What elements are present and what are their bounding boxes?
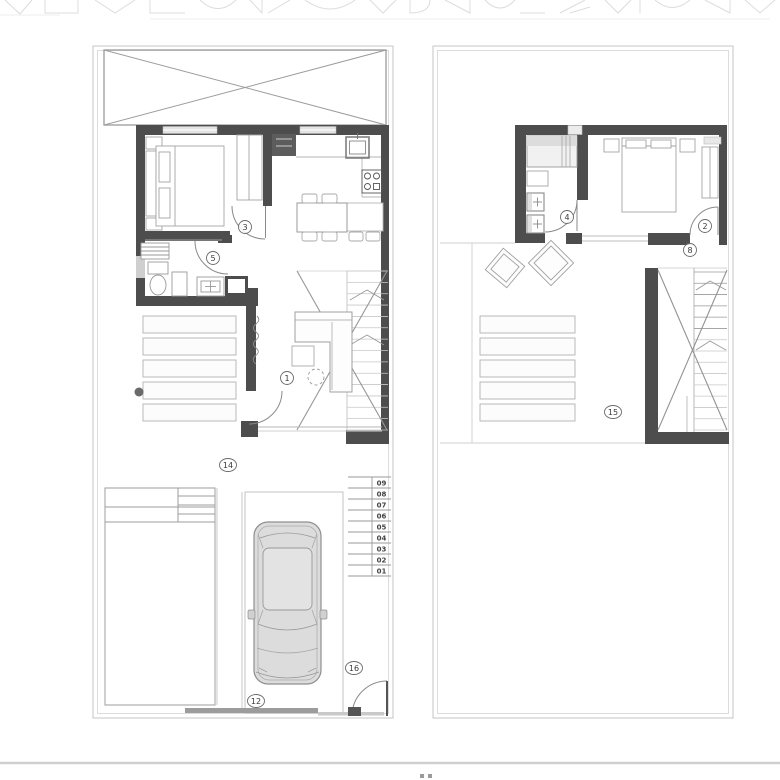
room-label-number: 8 <box>687 246 692 255</box>
shelf <box>704 137 721 144</box>
step-number: 08 <box>377 491 387 499</box>
floor-plan-sheet: 090807060504030201 351141612 <box>0 0 780 780</box>
wardrobe <box>237 135 262 200</box>
shower <box>527 136 577 167</box>
bath-cabinet <box>172 272 187 296</box>
outdoor-ground: 090807060504030201 <box>105 477 391 716</box>
column-dot <box>135 388 144 397</box>
ground-floor-plan: 090807060504030201 351141612 <box>93 46 393 718</box>
step-number: 06 <box>377 513 387 521</box>
deck-slat <box>143 360 236 377</box>
step-number: 01 <box>377 568 387 576</box>
shower-bench <box>141 243 169 259</box>
bed <box>622 138 676 212</box>
deck-slat <box>480 382 575 399</box>
room-label: 14 <box>220 459 237 472</box>
deck-slat <box>143 404 236 421</box>
deck-slat <box>480 338 575 355</box>
plan-drawing: 090807060504030201 351141612 <box>0 0 780 780</box>
car-mirror <box>320 610 327 619</box>
bedroom-upper <box>604 138 718 212</box>
kitchen <box>272 133 383 241</box>
cropped-title-outline-strip <box>0 0 775 19</box>
deck-slat <box>143 316 236 333</box>
step-number: 02 <box>377 557 387 565</box>
step-number: 09 <box>377 480 387 488</box>
room-label: 1 <box>281 372 294 385</box>
patio-structure <box>105 488 215 705</box>
deck-slats <box>143 316 236 421</box>
car <box>248 522 327 684</box>
bidet-upper <box>527 215 544 233</box>
stair-treads <box>694 272 727 430</box>
room-label-number: 2 <box>702 222 707 231</box>
room-label: 2 <box>699 220 712 233</box>
deck-slat <box>143 338 236 355</box>
service-shaft <box>227 278 247 295</box>
car-mirror <box>248 610 255 619</box>
stove <box>362 170 382 193</box>
fridge <box>272 134 296 156</box>
terrace-void-cross <box>104 50 386 125</box>
bed-headboard <box>146 151 156 216</box>
room-label-number: 16 <box>349 664 359 673</box>
step-number: 04 <box>377 535 387 543</box>
car-roof <box>263 548 312 610</box>
bath-counter <box>527 171 548 186</box>
bed-pillow <box>626 140 646 148</box>
side-table <box>292 346 314 366</box>
step-number: 07 <box>377 502 387 510</box>
room-label: 4 <box>561 211 574 224</box>
step-number: 05 <box>377 524 387 532</box>
upper-floor-plan: 42815 <box>433 46 733 718</box>
deck-slat <box>480 316 575 333</box>
nightstand <box>680 139 695 152</box>
washbasin <box>197 277 224 296</box>
bed-pillow <box>159 152 170 182</box>
bed-pillow <box>651 140 671 148</box>
stair-direction-chevrons <box>350 290 384 345</box>
dining-table <box>297 203 347 232</box>
living-stair <box>253 271 388 430</box>
room-label: 8 <box>684 244 697 257</box>
cut-off-north-symbol <box>420 774 432 778</box>
deck-slat <box>480 360 575 377</box>
nightstand <box>604 139 619 152</box>
kitchen-sink <box>346 133 369 158</box>
room-label-number: 15 <box>608 408 618 417</box>
stair-void-cross <box>658 270 727 430</box>
room-label-number: 3 <box>242 223 247 232</box>
terrace-lounge-chairs <box>485 240 573 287</box>
step-numbers: 090807060504030201 <box>377 480 387 576</box>
room-label-number: 4 <box>564 213 569 222</box>
room-label: 5 <box>207 252 220 265</box>
room-label: 16 <box>346 662 363 675</box>
toilet <box>148 262 168 295</box>
bedroom-ground <box>146 135 262 230</box>
deck-slat <box>143 382 236 399</box>
exterior-steps: 090807060504030201 <box>348 477 391 576</box>
toilet-upper <box>527 193 544 211</box>
bed-pillow <box>159 188 170 218</box>
pergola-deck-ground <box>135 316 237 421</box>
room-label-number: 5 <box>210 254 215 263</box>
room-label-number: 14 <box>223 461 233 470</box>
thresholds <box>185 707 384 716</box>
kitchen-island <box>347 203 383 231</box>
stair-upper <box>645 268 729 444</box>
room-label-number: 1 <box>284 374 289 383</box>
entry-door-arc <box>249 391 282 424</box>
pergola-slats-upper <box>480 316 575 421</box>
deck-slat <box>480 404 575 421</box>
room-label: 12 <box>248 695 265 708</box>
room-label-number: 12 <box>251 697 261 706</box>
step-number: 03 <box>377 546 387 554</box>
floor-lamp-dashed <box>308 369 324 385</box>
room-label: 3 <box>239 221 252 234</box>
room-label: 15 <box>605 406 622 419</box>
